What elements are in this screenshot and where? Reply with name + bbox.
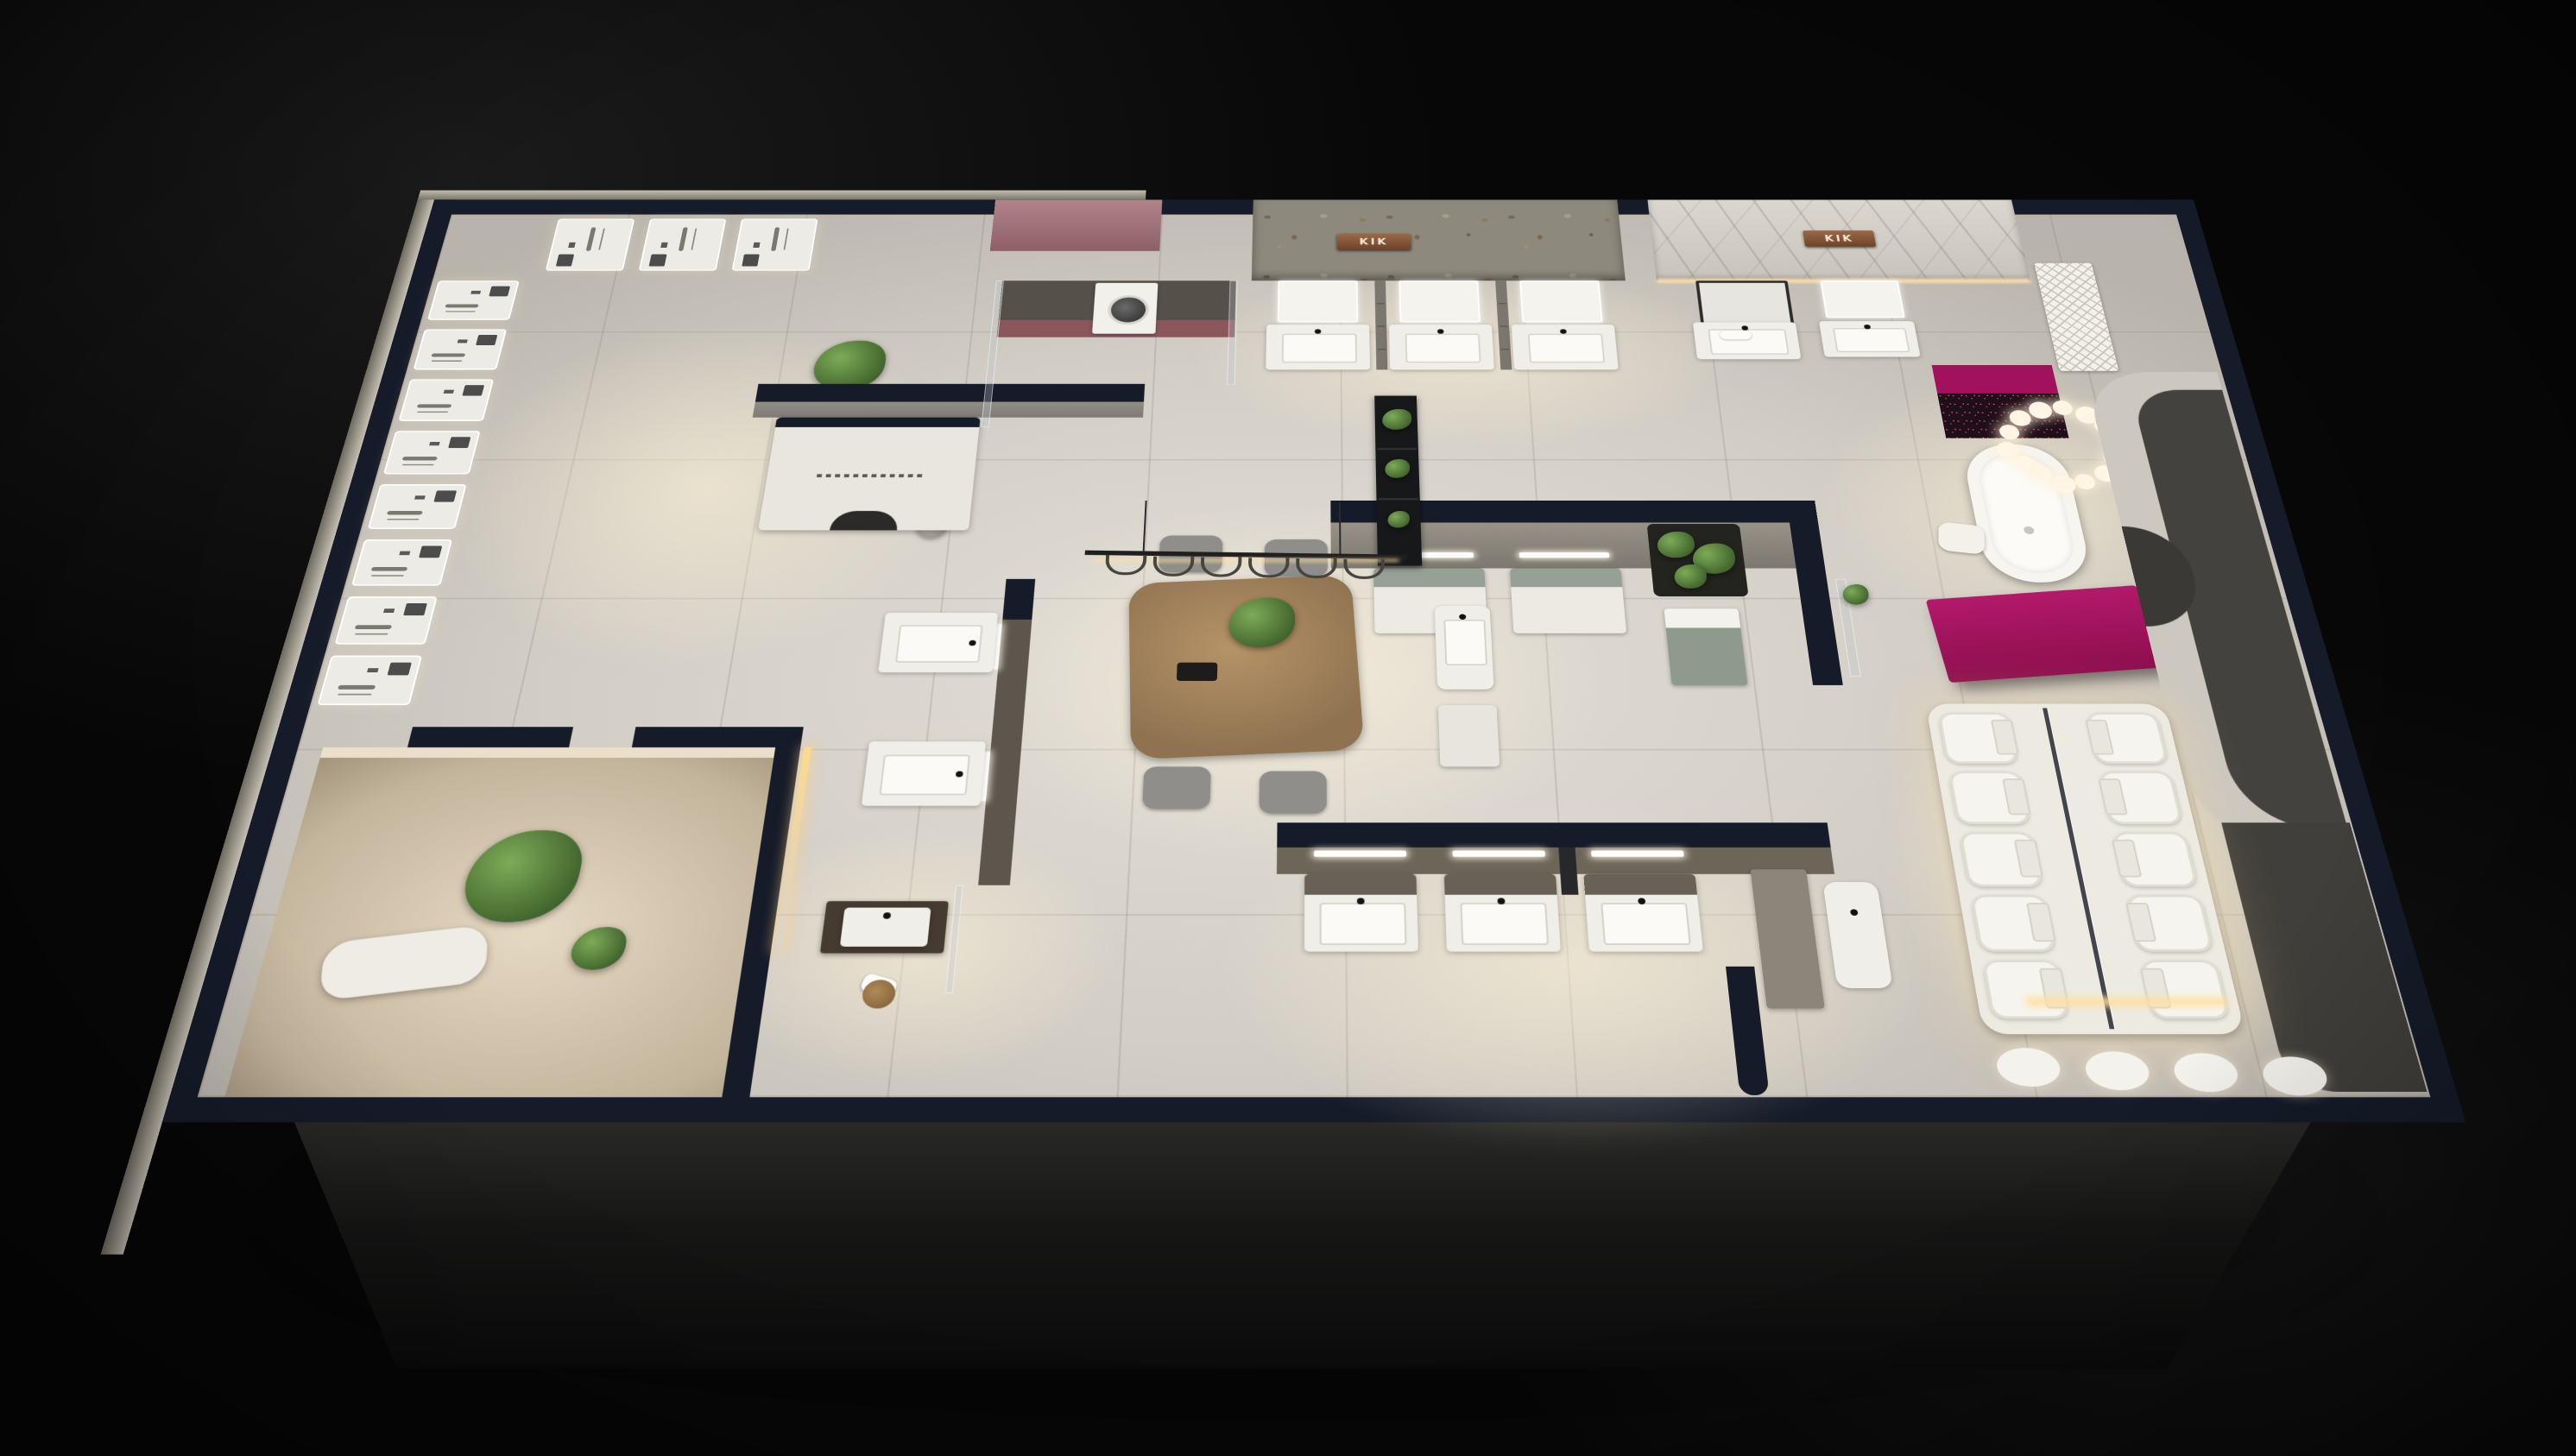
shower-panel (334, 596, 437, 645)
toilet (2140, 960, 2231, 1018)
lounge-wall (407, 727, 573, 747)
kiosk-slogan-strip (817, 474, 925, 477)
toilet (1948, 771, 2031, 823)
tea-tray (1177, 663, 1218, 681)
towel-roll (1719, 331, 1752, 340)
building-slab-front-face (224, 1110, 2383, 1369)
shower-panel (383, 431, 481, 474)
toilet (1937, 712, 2018, 763)
shelf-plant (1385, 459, 1410, 478)
vanity-unit (1512, 325, 1619, 369)
led-mirror (1820, 280, 1904, 318)
vanity-unit (1819, 321, 1921, 356)
vanity-unit (1304, 874, 1418, 952)
shower-panel (317, 655, 422, 705)
toilet (2098, 771, 2183, 823)
plant-etagere (1374, 395, 1422, 565)
shower-panel (398, 379, 494, 421)
shower-panel (731, 218, 818, 270)
chair (1142, 766, 1211, 809)
mid-wall-cap (755, 384, 1145, 402)
shower-panel (638, 218, 726, 270)
vanity-unit-sage (1510, 568, 1626, 633)
brand-sign-text: KIK (1824, 234, 1855, 243)
brand-sign-text: KIK (1359, 236, 1388, 246)
vanity-unit (1583, 874, 1703, 952)
floor-plan-scene: KIK KIK (162, 199, 2466, 1122)
shower-panel (427, 280, 520, 320)
vanity-unit (878, 613, 998, 672)
sage-basin-stand (1664, 608, 1747, 685)
vanity-unit (1389, 325, 1494, 369)
magenta-reception-desk (1925, 585, 2165, 683)
mirror-strip (1452, 850, 1544, 856)
partition-cap (1002, 579, 1035, 620)
kiosk-cap (775, 418, 981, 427)
shelf-cubby (1558, 848, 1578, 895)
white-chair (1938, 521, 1985, 555)
led-mirror (1398, 280, 1481, 322)
basin-podium (1435, 606, 1494, 690)
mirror-strip (1519, 552, 1610, 558)
lounge-wall-face (320, 747, 775, 758)
mid-wall-face (753, 401, 1144, 417)
low-display-cabinet (1438, 705, 1500, 766)
mirror-strip (1591, 850, 1684, 856)
shower-panel (413, 329, 507, 369)
shelf-plant (1387, 511, 1410, 527)
led-mirror (1519, 280, 1603, 322)
island-wall-cap (1277, 823, 1830, 848)
backlit-niche (2025, 997, 2230, 1007)
toilet (1970, 895, 2056, 952)
washing-machine (1092, 283, 1158, 334)
shower-panel (368, 484, 467, 529)
kiosk-arch-opening (830, 511, 900, 530)
shelf-plant (1382, 409, 1412, 430)
shower-panel (546, 218, 635, 270)
vanity-basin-top (840, 907, 931, 946)
vanity-unit (1693, 322, 1802, 359)
service-kiosk (758, 418, 981, 531)
lounge-wall (632, 727, 779, 747)
vanity-unit (1266, 325, 1370, 369)
display-shelf (1374, 280, 1387, 369)
toilet (1982, 960, 2070, 1018)
toilet (2085, 712, 2169, 763)
brand-sign-stone-wall: KIK (1336, 234, 1411, 250)
washer-door (1107, 295, 1149, 325)
mirror-strip (1314, 850, 1406, 856)
magenta-backdrop-wall (1931, 365, 2058, 394)
exterior-wall-rim-top (418, 190, 1146, 199)
framed-mirror (1695, 280, 1794, 325)
green-bed (1646, 524, 1748, 596)
toilet (2112, 832, 2198, 887)
vanity-unit (1444, 874, 1561, 952)
shower-panel (351, 539, 452, 586)
lounge-floor (224, 747, 775, 1097)
showroom-render: KIK KIK (0, 0, 2576, 1456)
toilet (2125, 895, 2214, 952)
perimeter-wall-bottom (162, 1097, 2466, 1122)
rose-wall-panel (990, 199, 1163, 250)
toilet (1959, 832, 2043, 887)
pendant-wire (1339, 502, 1341, 554)
stone-feature-wall (1252, 199, 1626, 280)
chair (1259, 771, 1326, 813)
brand-sign-marble-wall: KIK (1803, 230, 1876, 247)
vanity-unit (862, 741, 986, 806)
led-mirror (1278, 280, 1358, 322)
